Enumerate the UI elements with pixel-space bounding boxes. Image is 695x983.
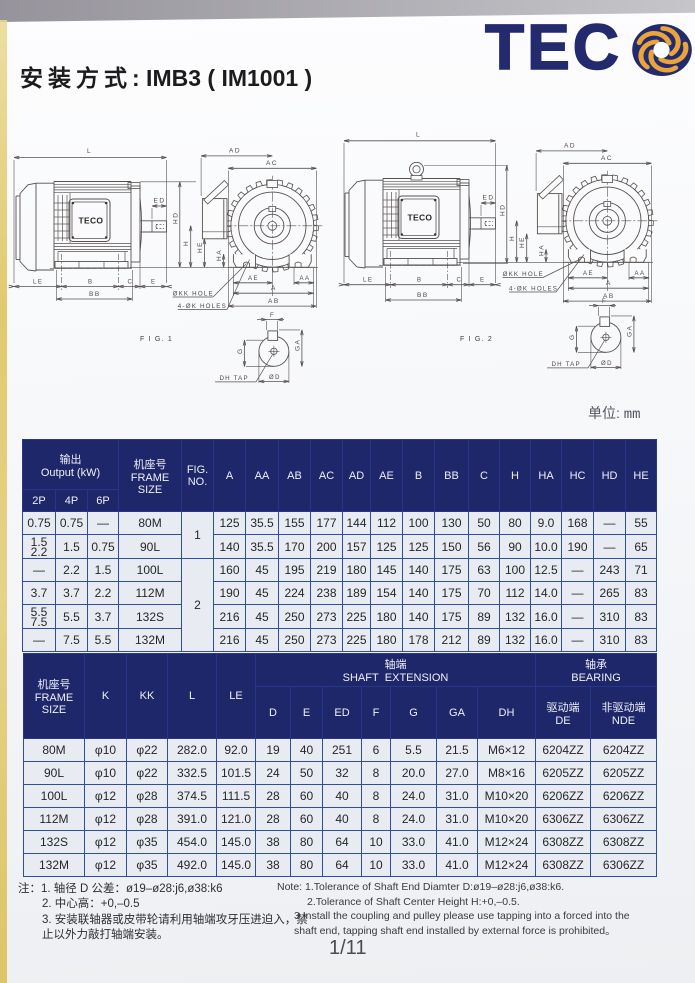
svg-text:DH TAP: DH TAP <box>220 375 249 382</box>
svg-text:B: B <box>88 280 94 286</box>
svg-text:4-ØK HOLES: 4-ØK HOLES <box>178 303 227 310</box>
svg-text:L: L <box>416 131 421 138</box>
svg-text:BB: BB <box>417 292 429 299</box>
svg-text:HD: HD <box>499 204 506 216</box>
svg-text:A: A <box>271 285 277 292</box>
svg-text:AB: AB <box>268 298 280 305</box>
svg-text:ED: ED <box>483 195 495 202</box>
svg-text:LE: LE <box>33 280 43 286</box>
svg-text:AD: AD <box>564 143 576 150</box>
svg-text:F: F <box>270 313 275 319</box>
svg-text:HE: HE <box>519 236 526 248</box>
svg-text:HD: HD <box>172 212 179 224</box>
svg-text:AC: AC <box>266 160 278 167</box>
svg-text:ØD: ØD <box>269 375 281 381</box>
svg-text:AC: AC <box>601 155 613 162</box>
svg-text:H: H <box>183 240 190 246</box>
svg-text:B: B <box>417 278 423 284</box>
svg-text:E: E <box>151 280 157 286</box>
svg-text:G: G <box>237 347 244 354</box>
svg-text:A: A <box>606 280 612 287</box>
svg-text:4-ØK HOLES: 4-ØK HOLES <box>509 286 558 293</box>
svg-text:AE: AE <box>248 276 259 282</box>
svg-text:HA: HA <box>539 244 546 256</box>
svg-text:F I G. 2: F I G. 2 <box>460 336 493 343</box>
svg-text:LE: LE <box>363 278 373 284</box>
svg-text:AA: AA <box>300 276 311 282</box>
svg-text:ØKK HOLE: ØKK HOLE <box>173 291 214 298</box>
svg-text:GA: GA <box>626 325 633 337</box>
svg-text:AD: AD <box>229 148 241 155</box>
svg-text:ØD: ØD <box>601 361 613 367</box>
svg-text:L: L <box>87 148 92 155</box>
svg-text:G: G <box>569 333 576 340</box>
svg-text:HE: HE <box>197 241 204 253</box>
svg-text:ØKK HOLE: ØKK HOLE <box>503 271 544 278</box>
svg-text:BB: BB <box>89 291 101 298</box>
svg-text:AE: AE <box>583 271 594 277</box>
svg-text:GA: GA <box>294 339 301 351</box>
svg-text:DH TAP: DH TAP <box>552 361 581 368</box>
svg-text:ED: ED <box>154 198 166 205</box>
svg-text:HA: HA <box>216 249 223 261</box>
svg-text:AA: AA <box>635 271 646 277</box>
svg-text:E: E <box>480 278 486 284</box>
svg-text:F I G. 1: F I G. 1 <box>140 336 173 343</box>
svg-text:H: H <box>509 235 516 241</box>
svg-text:F: F <box>602 299 607 305</box>
